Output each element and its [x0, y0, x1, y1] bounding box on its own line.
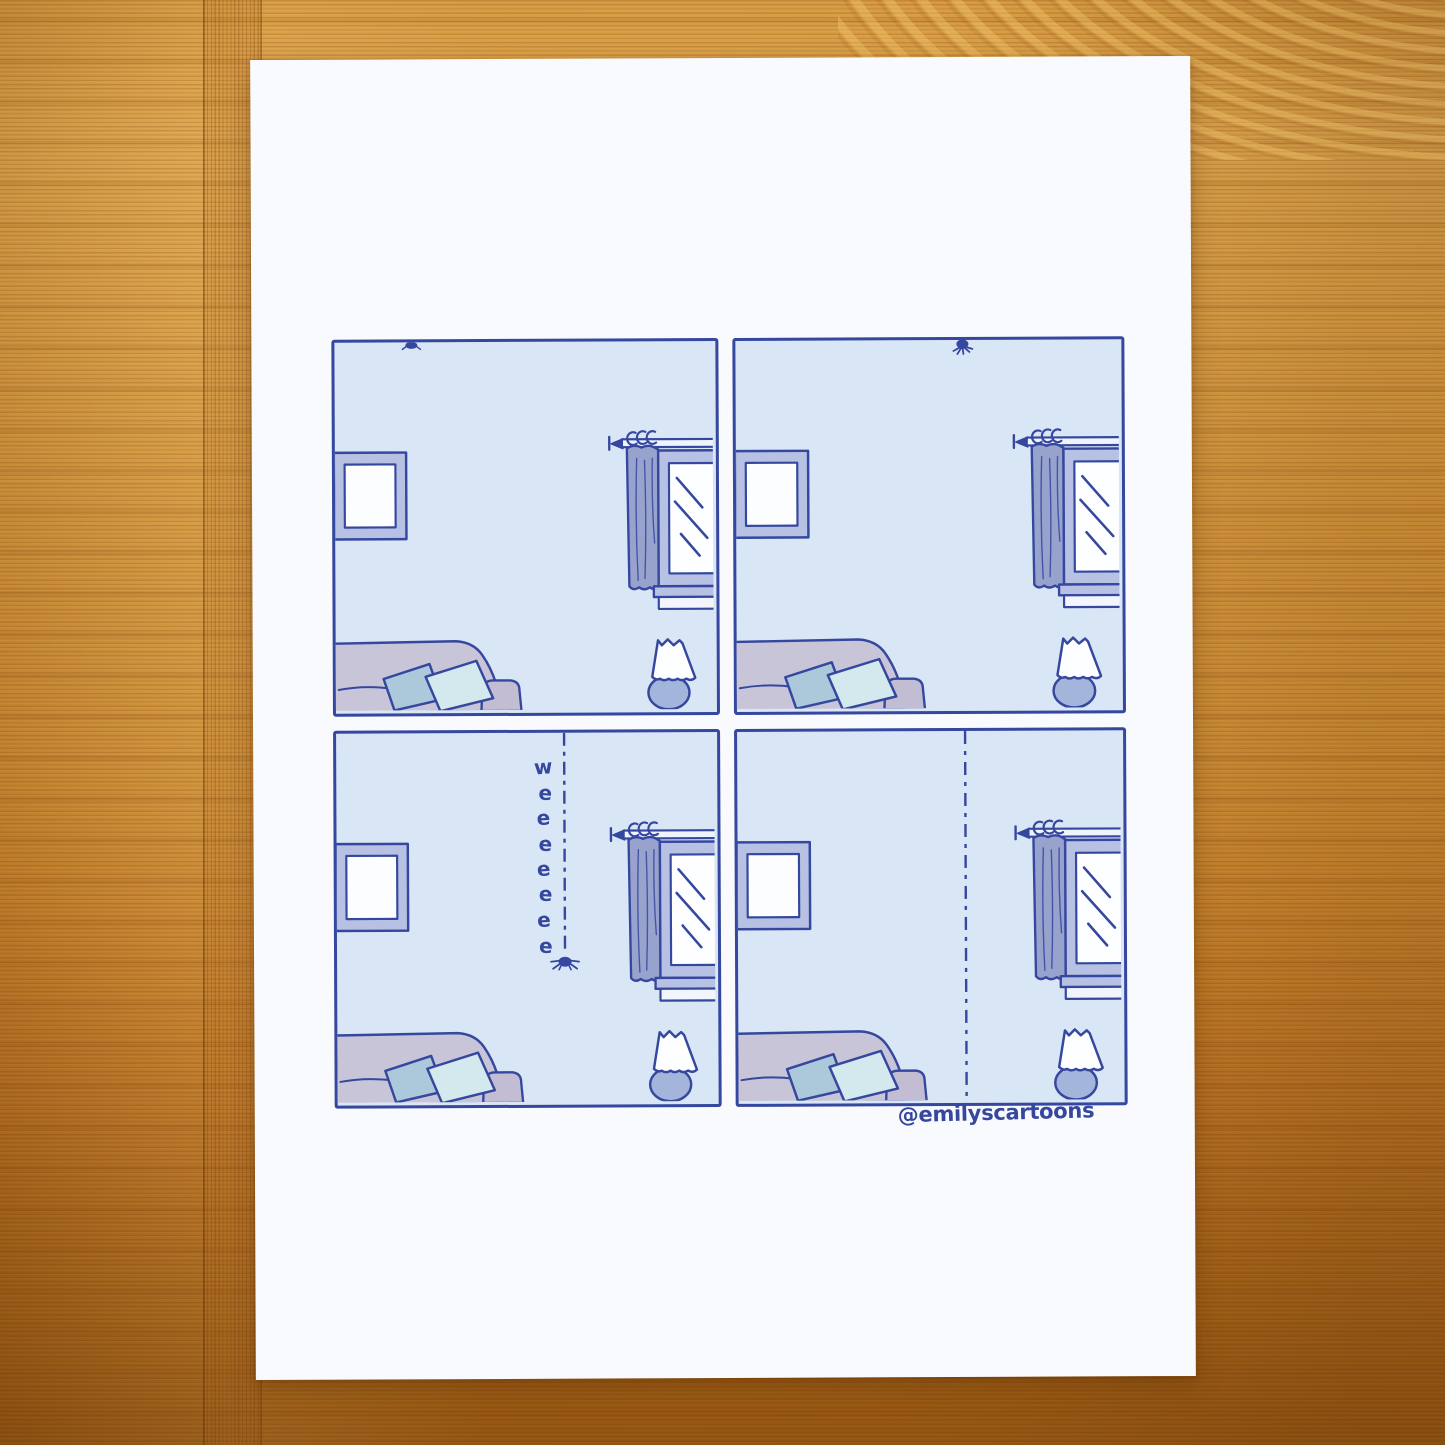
paper-print: w e e e e e e e @emilyscartoons [250, 56, 1196, 1380]
room-scene [734, 727, 1122, 1101]
photo-of-comic-print: w e e e e e e e @emilyscartoons [0, 0, 1445, 1445]
sound-effect-letter: e [532, 807, 555, 829]
spider-thread [952, 731, 984, 1107]
room-scene [331, 338, 714, 711]
room-scene [732, 336, 1120, 709]
spider-icon [550, 955, 582, 973]
sound-effect-letter: e [534, 782, 557, 803]
comic-panel-4 [734, 727, 1128, 1107]
sound-effect-letter: e [534, 883, 557, 904]
spider-icon [947, 339, 979, 356]
spider-icon [396, 341, 426, 355]
sound-effect-letter: e [532, 858, 555, 880]
comic-panel-1 [331, 338, 720, 717]
comic-panel-3: w e e e e e e e [333, 729, 722, 1109]
artist-signature: @emilyscartoons [898, 1098, 1095, 1127]
sound-effect-letter: e [532, 909, 555, 931]
sound-effect-letter: e [534, 833, 557, 854]
sound-effect-letter: e [534, 935, 557, 956]
comic-panel-2 [732, 336, 1126, 715]
room-scene [333, 729, 716, 1103]
sound-effect-letter: w [532, 756, 555, 778]
